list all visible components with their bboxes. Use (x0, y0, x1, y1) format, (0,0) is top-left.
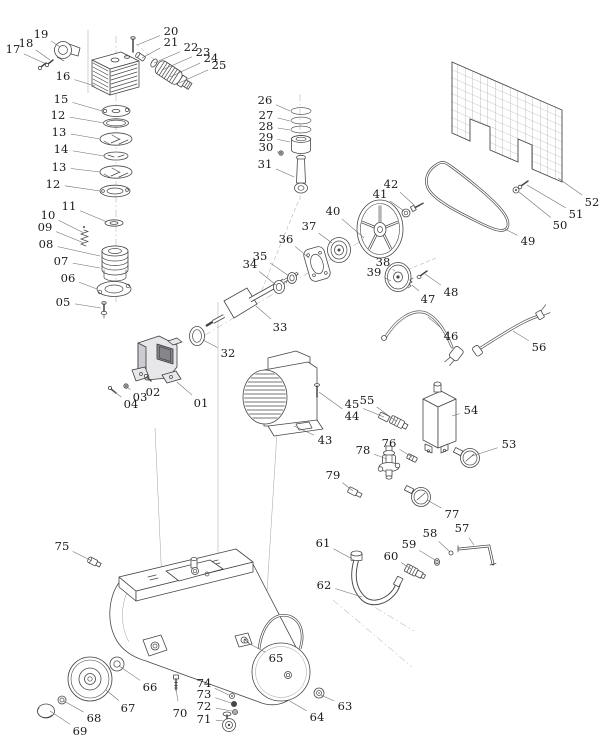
leader-line-57 (469, 538, 474, 545)
leader-line-29 (278, 139, 290, 142)
part-label-15: 15 (54, 92, 69, 106)
part-label-05: 05 (56, 295, 71, 309)
leader-line-73 (215, 698, 231, 703)
leader-line-13 (71, 134, 100, 139)
axle-nut (58, 696, 66, 704)
leader-line-58 (439, 541, 450, 552)
part-label-40: 40 (326, 204, 341, 218)
leader-line-37 (319, 233, 332, 243)
leader-line-63 (321, 695, 334, 701)
valve-plate (100, 133, 132, 145)
part-label-52: 52 (585, 195, 600, 209)
part-label-58: 58 (423, 526, 438, 540)
leader-line-12 (65, 186, 100, 191)
part-label-78: 78 (356, 443, 371, 457)
part-label-04: 04 (124, 397, 139, 411)
pressure-gauge (412, 488, 431, 507)
plug (444, 345, 464, 367)
crankshaft-counterweight (224, 288, 257, 318)
leader-line-52 (558, 178, 582, 195)
tank-assembly (38, 549, 325, 732)
leader-line-32 (203, 340, 217, 348)
part-label-71: 71 (197, 712, 212, 726)
part-label-59: 59 (402, 537, 417, 551)
leader-line-67 (106, 690, 119, 700)
exploded-parts-diagram: 1718191620212223242515121314131211100908… (0, 0, 615, 755)
belt-guard (452, 62, 562, 193)
piston-assembly (279, 108, 311, 193)
leader-line-28 (278, 128, 290, 130)
part-label-34: 34 (243, 257, 258, 271)
part-label-69: 69 (73, 724, 88, 738)
leader-line-26 (276, 105, 290, 111)
leader-line-79 (342, 483, 353, 492)
power-cables (382, 305, 551, 368)
part-label-51: 51 (569, 207, 584, 221)
leader-line-72 (216, 708, 232, 711)
leader-line-66 (119, 666, 140, 680)
leader-line-20 (137, 36, 160, 45)
flywheel (357, 200, 424, 258)
leader-line-42 (400, 192, 414, 205)
diagram-page: 1718191620212223242515121314131211100908… (0, 0, 615, 755)
part-label-50: 50 (553, 218, 568, 232)
part-label-61: 61 (316, 536, 331, 550)
pipes-and-fittings (351, 546, 496, 603)
part-label-14: 14 (54, 142, 69, 156)
part-label-46: 46 (444, 329, 459, 343)
leader-line-01 (177, 382, 192, 395)
leader-line-07 (73, 263, 100, 268)
piston-ring (291, 117, 311, 124)
leader-line-71 (216, 720, 224, 721)
part-label-64: 64 (310, 710, 325, 724)
part-label-76: 76 (382, 436, 397, 450)
part-label-13: 13 (52, 160, 67, 174)
part-label-11: 11 (62, 199, 77, 213)
cable-gland (389, 415, 409, 430)
pulley-bolt (420, 271, 427, 276)
leader-line-21 (142, 48, 161, 58)
leader-line-22 (154, 52, 180, 63)
part-label-44: 44 (345, 409, 360, 423)
leader-line-09 (56, 232, 84, 243)
part-label-06: 06 (61, 271, 76, 285)
pipe-washer (434, 559, 439, 566)
part-label-63: 63 (338, 699, 353, 713)
leader-line-34 (259, 272, 276, 286)
leader-line-10 (59, 220, 84, 233)
part-label-60: 60 (384, 549, 399, 563)
leader-line-12 (70, 117, 104, 123)
part-label-36: 36 (279, 232, 294, 246)
wheel-washer (110, 657, 124, 671)
part-label-67: 67 (121, 701, 136, 715)
leader-line-77 (427, 500, 442, 508)
leader-line-06 (79, 282, 97, 289)
leader-line-03 (127, 387, 131, 390)
leader-line-33 (256, 306, 271, 319)
leader-line-64 (288, 700, 307, 711)
leader-line-17 (24, 54, 44, 63)
leader-line-48 (425, 274, 441, 285)
part-label-30: 30 (259, 140, 274, 154)
check-valve (404, 564, 426, 581)
part-label-18: 18 (19, 36, 34, 50)
leader-line-47 (412, 285, 419, 291)
drive-belt (426, 162, 508, 230)
leader-line-11 (80, 211, 107, 222)
leader-line-75 (73, 551, 92, 561)
part-label-75: 75 (55, 539, 70, 553)
part-label-16: 16 (56, 69, 71, 83)
part-label-55: 55 (360, 393, 375, 407)
leader-line-15 (73, 102, 103, 111)
reed-valve (104, 152, 128, 160)
part-label-07: 07 (54, 254, 69, 268)
part-label-13: 13 (52, 125, 67, 139)
leader-line-35 (270, 263, 289, 276)
part-label-48: 48 (444, 285, 459, 299)
part-label-49: 49 (521, 234, 536, 248)
leader-line-18 (36, 50, 50, 60)
leader-line-05 (75, 304, 101, 308)
base-gasket (97, 282, 131, 297)
part-label-70: 70 (173, 706, 188, 720)
part-label-12: 12 (46, 177, 61, 191)
valve-plate (100, 166, 132, 178)
part-label-31: 31 (258, 157, 273, 171)
pressure-gauge (461, 449, 480, 468)
leader-line-27 (278, 118, 290, 121)
small-plate (105, 220, 123, 226)
part-label-47: 47 (421, 292, 436, 306)
leader-line-51 (527, 185, 566, 208)
part-label-21: 21 (164, 35, 179, 49)
part-label-66: 66 (143, 680, 158, 694)
part-label-79: 79 (326, 468, 341, 482)
part-label-62: 62 (317, 578, 332, 592)
part-label-77: 77 (445, 507, 460, 521)
part-label-53: 53 (502, 437, 517, 451)
tank-plug (87, 556, 102, 567)
part-label-12: 12 (51, 108, 66, 122)
bearing (288, 273, 297, 284)
leader-line-70 (176, 689, 178, 701)
part-label-01: 01 (194, 396, 209, 410)
piston-ring (291, 126, 311, 133)
leader-line-44 (319, 392, 342, 409)
part-label-42: 42 (384, 177, 399, 191)
part-label-19: 19 (34, 27, 49, 41)
part-label-68: 68 (87, 711, 102, 725)
safety-valve (378, 446, 400, 479)
leader-line-13 (71, 169, 100, 173)
part-label-02: 02 (146, 385, 161, 399)
part-label-65: 65 (269, 651, 284, 665)
part-label-33: 33 (273, 320, 288, 334)
part-label-39: 39 (367, 265, 382, 279)
leader-line-50 (519, 192, 551, 218)
electric-motor (243, 351, 323, 436)
part-label-56: 56 (532, 340, 547, 354)
flywheel-bolt (410, 201, 424, 212)
part-label-26: 26 (258, 93, 273, 107)
part-label-57: 57 (455, 521, 470, 535)
part-label-54: 54 (464, 403, 479, 417)
leader-line-56 (513, 331, 529, 341)
leader-line-49 (505, 229, 517, 235)
bearing (274, 281, 285, 294)
part-label-32: 32 (221, 346, 236, 360)
leader-line-76 (399, 449, 412, 457)
leader-line-31 (276, 169, 294, 177)
piston (292, 136, 311, 154)
part-label-72: 72 (197, 699, 212, 713)
leader-line-59 (419, 550, 435, 560)
part-label-09: 09 (38, 220, 53, 234)
part-label-08: 08 (39, 237, 54, 251)
piston-ring (291, 108, 311, 115)
leader-line-04 (113, 391, 121, 397)
part-label-37: 37 (302, 219, 317, 233)
air-filter (148, 55, 194, 92)
part-label-43: 43 (318, 433, 333, 447)
valve-spring (81, 230, 88, 246)
leader-line-14 (73, 151, 104, 156)
leader-line-69 (50, 711, 70, 724)
leader-line-68 (64, 701, 84, 712)
part-label-25: 25 (212, 58, 227, 72)
